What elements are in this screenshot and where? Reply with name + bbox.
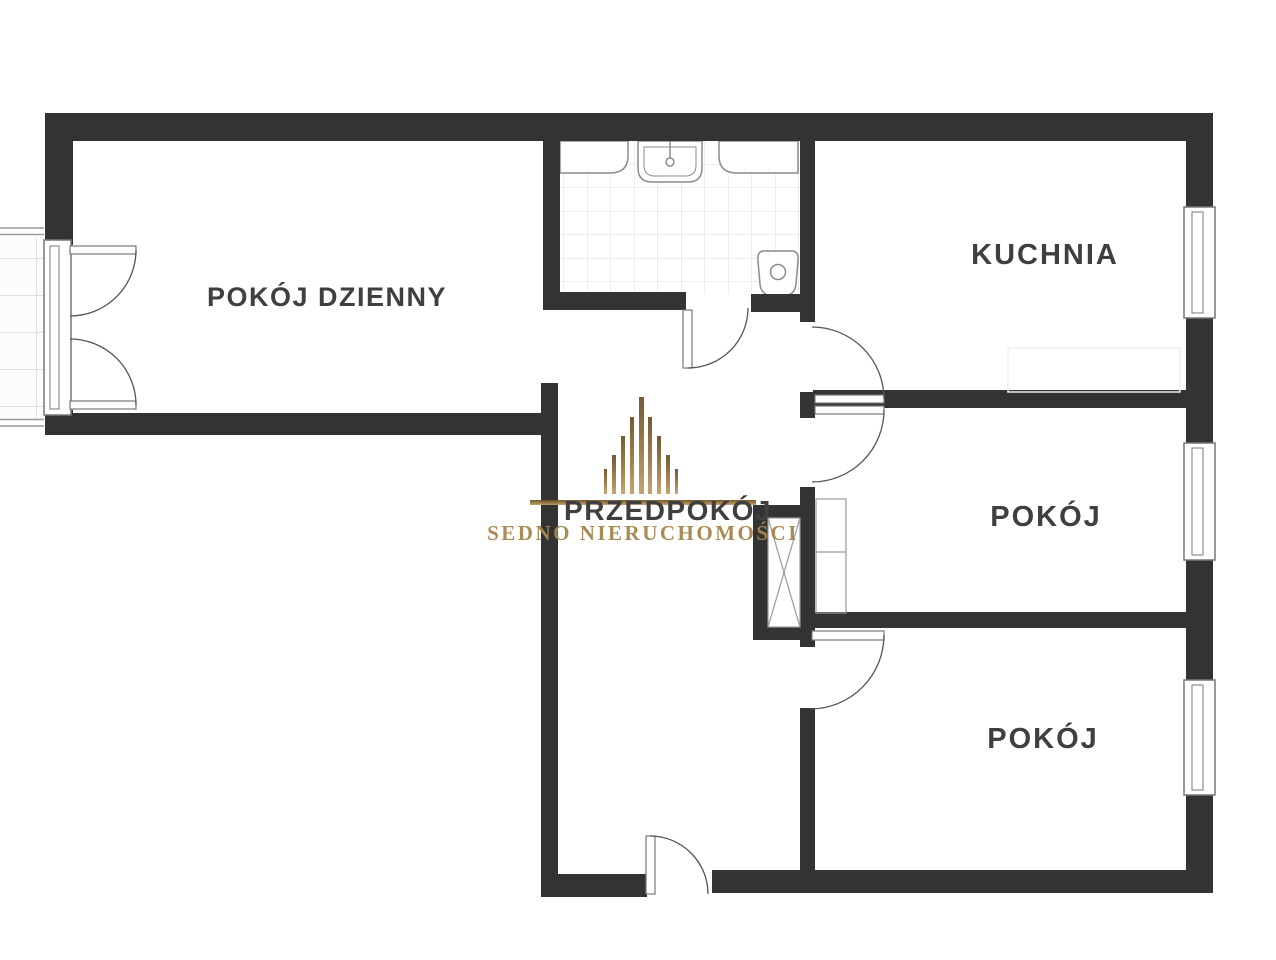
label-hallway: PRZEDPOKÓJ xyxy=(564,495,772,526)
wall-hallway-left xyxy=(541,383,558,897)
floorplan: SEDNO NIERUCHOMOŚCI POKÓJ DZIENNY KUCHNI… xyxy=(0,0,1276,960)
sink-drain xyxy=(666,158,674,166)
bathroom-counter-right xyxy=(719,141,798,173)
wall-bathroom-bottom-left xyxy=(543,292,686,310)
kitchen-counter-hint xyxy=(1008,348,1180,392)
entrance-door-swing xyxy=(650,836,708,894)
wall-exterior-right-2 xyxy=(1186,318,1213,445)
wall-divider-hall-room-lower xyxy=(800,708,815,893)
label-living-room: POKÓJ DZIENNY xyxy=(207,281,447,312)
balcony-tiles xyxy=(0,237,45,420)
room-labels: POKÓJ DZIENNY KUCHNIA PRZEDPOKÓJ POKÓJ P… xyxy=(207,239,1119,755)
floorplan-drawing: SEDNO NIERUCHOMOŚCI POKÓJ DZIENNY KUCHNI… xyxy=(0,0,1276,960)
wardrobe xyxy=(816,499,846,613)
bathroom-door-leaf xyxy=(683,310,692,368)
label-room-middle: POKÓJ xyxy=(990,499,1102,533)
room-middle-door-leaf xyxy=(815,406,884,414)
kitchen-door-swing xyxy=(812,327,884,399)
balcony-door-leaf-bottom xyxy=(70,401,136,409)
wall-exterior-bottom xyxy=(712,870,1213,893)
wall-hallway-bottom xyxy=(541,874,647,897)
wall-exterior-right-3 xyxy=(1186,560,1213,682)
kitchen-door-leaf xyxy=(815,395,884,403)
balcony-door-leaf-top xyxy=(70,246,136,254)
bathroom xyxy=(560,140,800,296)
room-bottom-door-leaf xyxy=(812,631,884,640)
wall-exterior-top xyxy=(45,113,1213,141)
room-bottom-door-swing xyxy=(810,635,884,709)
wall-rooms-divider xyxy=(800,612,1187,628)
entrance-door-leaf xyxy=(646,836,655,894)
furniture xyxy=(768,348,1180,627)
window-room-bottom xyxy=(1184,680,1215,795)
wall-divider-bath-kitchen xyxy=(800,113,815,322)
label-room-bottom: POKÓJ xyxy=(987,721,1099,755)
wall-livingroom-bottom xyxy=(45,413,558,435)
bathroom-counter-left xyxy=(560,141,628,173)
bathroom-door-swing xyxy=(688,308,748,368)
label-kitchen: KUCHNIA xyxy=(971,239,1119,271)
room-middle-door-swing xyxy=(812,410,884,482)
wall-divider-stub xyxy=(800,392,815,418)
balcony-door-swing-top xyxy=(70,250,136,316)
wall-bathroom-left xyxy=(543,113,560,308)
wall-exterior-left-upper xyxy=(45,113,73,245)
watermark-building-icon xyxy=(530,397,756,505)
balcony-door-swing-bottom xyxy=(70,339,136,405)
wall-exterior-right-1 xyxy=(1186,113,1213,209)
window-kitchen xyxy=(1184,207,1215,318)
window-room-middle xyxy=(1184,443,1215,560)
balcony-door-frame xyxy=(44,240,71,415)
wall-exterior-right-4 xyxy=(1186,793,1213,893)
balcony xyxy=(0,228,45,426)
toilet-flush xyxy=(771,265,786,280)
wall-shaft-bottom xyxy=(753,627,813,640)
